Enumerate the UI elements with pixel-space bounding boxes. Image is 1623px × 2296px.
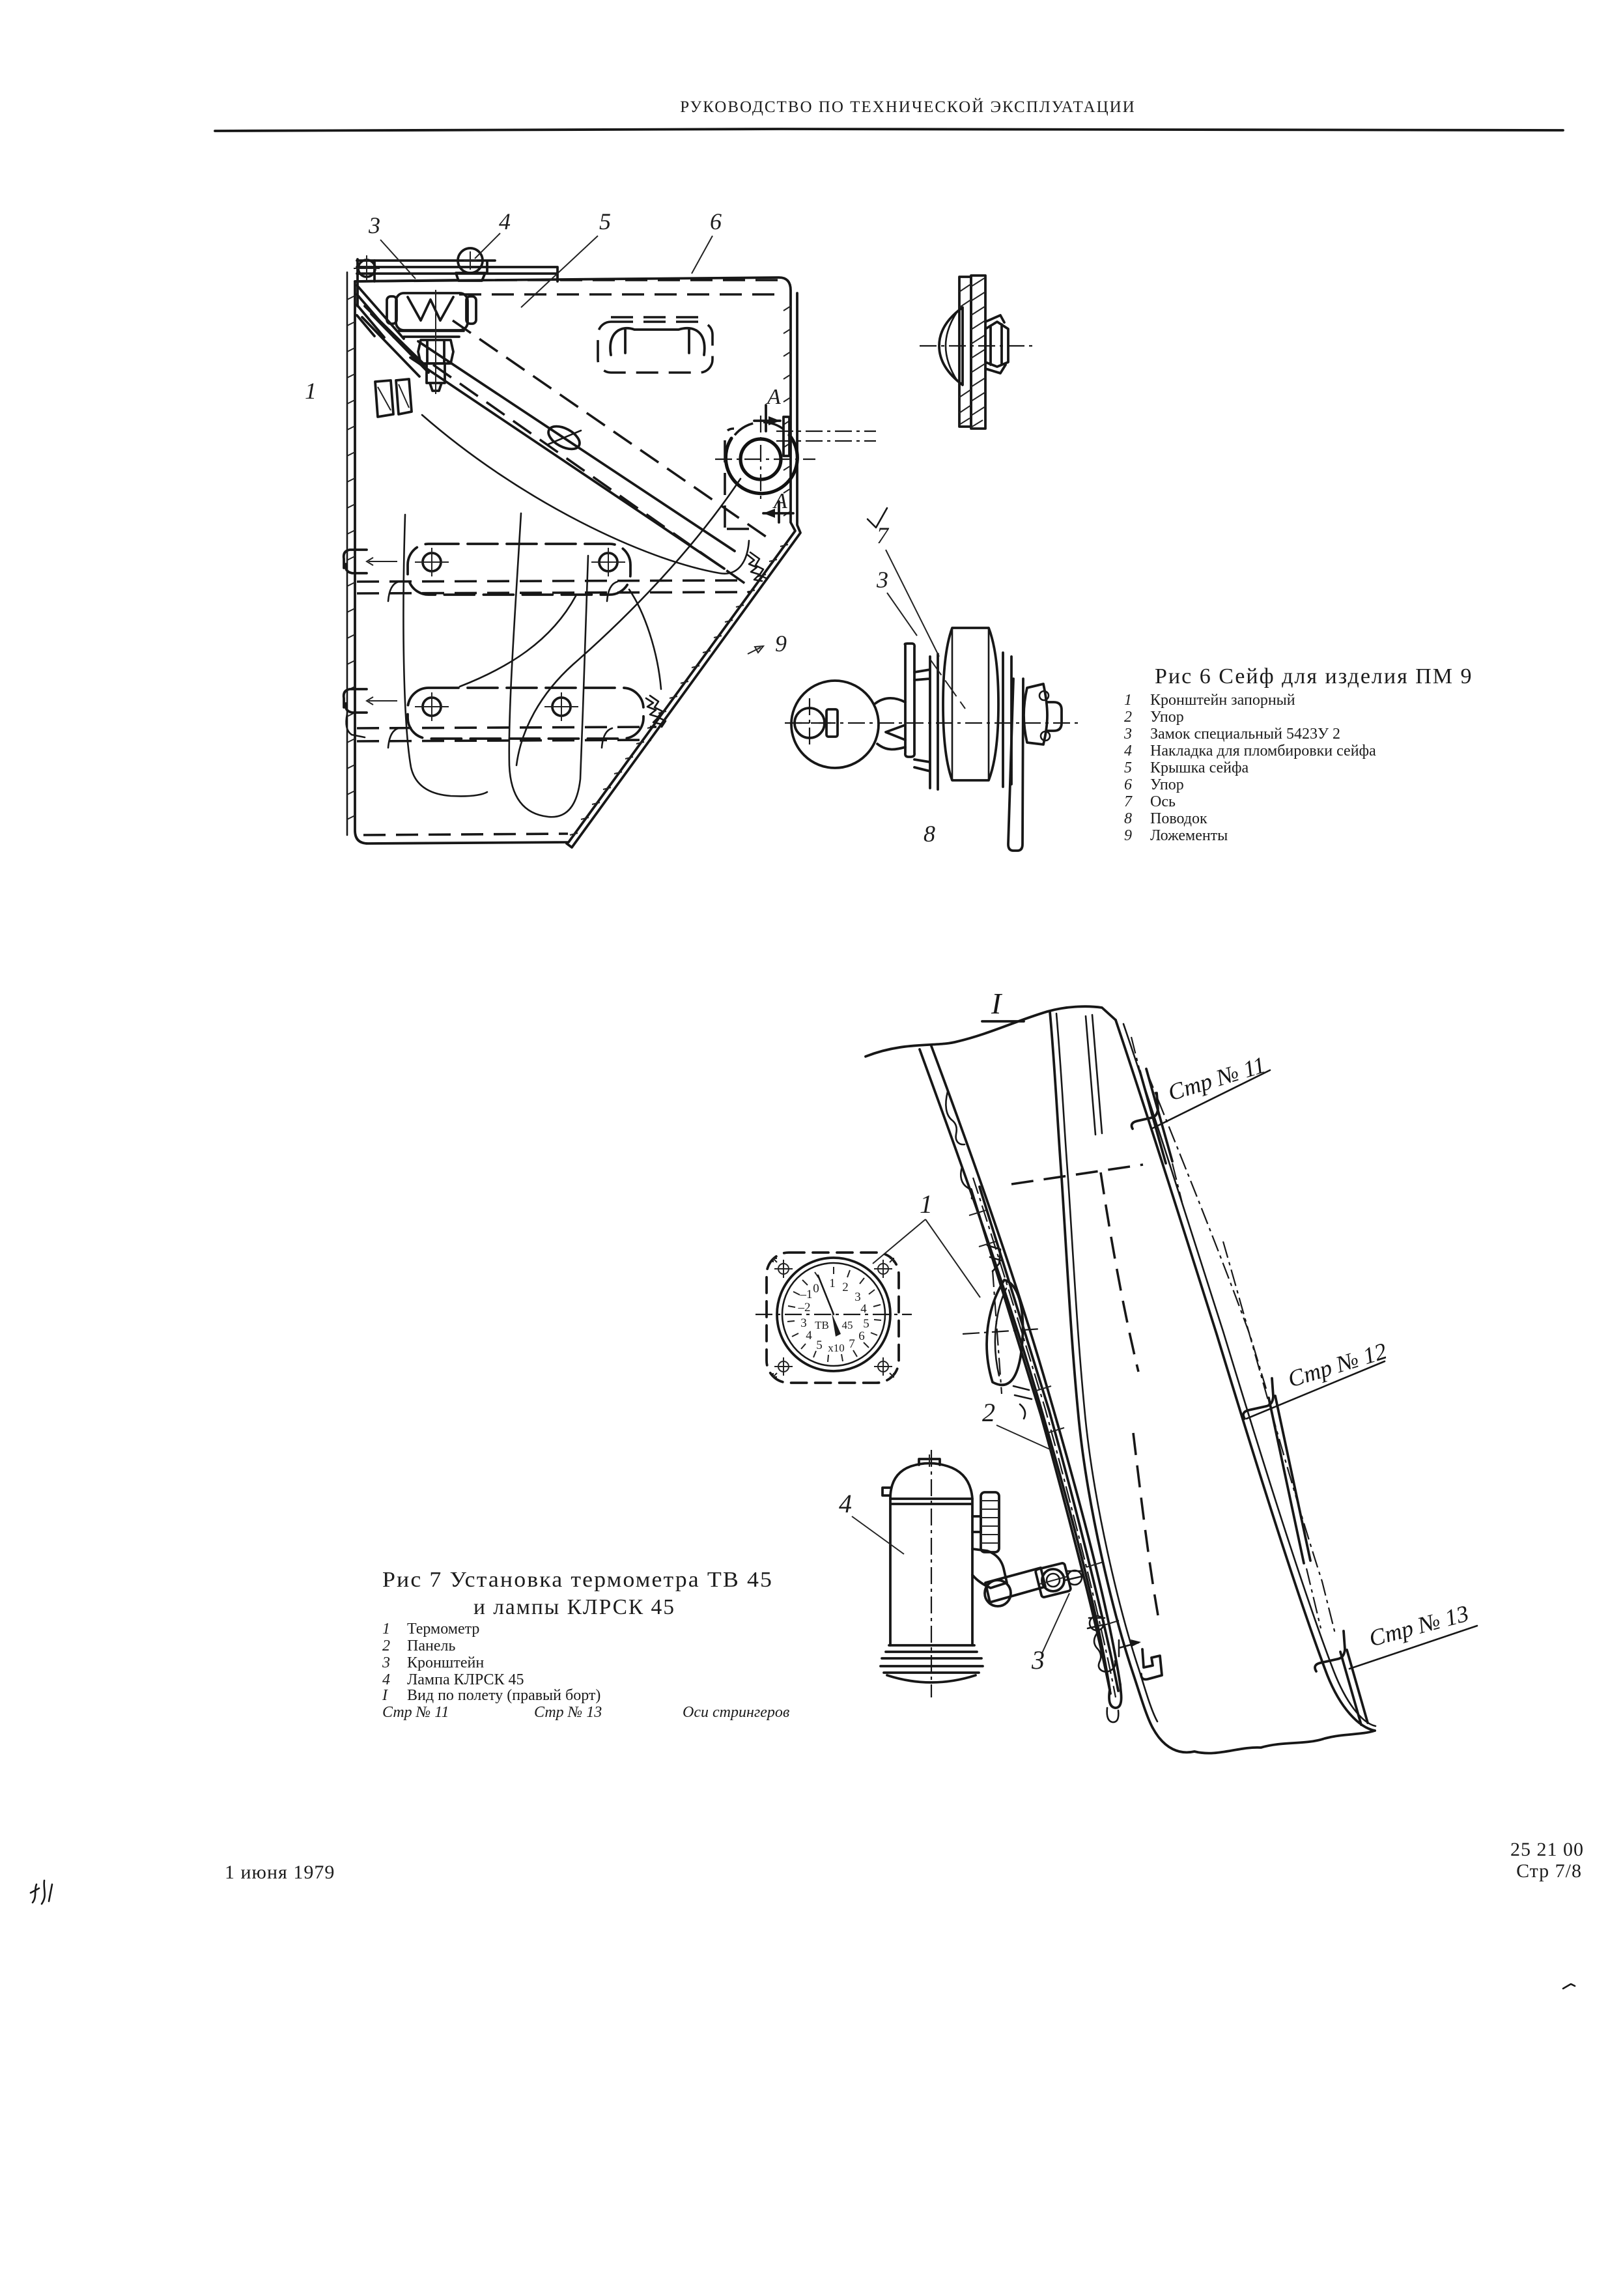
svg-text:ТВ: ТВ (815, 1319, 829, 1331)
svg-text:4: 4 (382, 1671, 390, 1688)
svg-text:Ложементы: Ложементы (1150, 827, 1228, 844)
svg-text:7: 7 (877, 522, 890, 548)
svg-text:7: 7 (1124, 793, 1133, 810)
svg-text:3: 3 (1123, 726, 1132, 743)
svg-text:Крышка сейфа: Крышка сейфа (1150, 759, 1249, 776)
svg-text:4: 4 (860, 1302, 867, 1316)
svg-text:2: 2 (842, 1281, 849, 1294)
svg-text:Замок специальный 5423У 2: Замок специальный 5423У 2 (1150, 726, 1340, 743)
svg-text:3: 3 (382, 1654, 390, 1671)
svg-text:8: 8 (924, 821, 935, 847)
svg-text:Ось: Ось (1150, 793, 1176, 810)
svg-text:Рис 7 Установка термомет: Рис 7 Установка термометра ТВ 45 (382, 1568, 773, 1592)
svg-text:и лампы КЛРСК 45: и лампы КЛРСК 45 (473, 1595, 675, 1619)
svg-text:5: 5 (816, 1339, 823, 1352)
svg-text:Накладка для пломбировки сейфа: Накладка для пломбировки сейфа (1150, 743, 1376, 759)
svg-text:2: 2 (382, 1637, 390, 1654)
svg-text:Панель: Панель (407, 1637, 455, 1654)
svg-text:Стр № 11: Стр № 11 (382, 1704, 449, 1721)
svg-text:1 июня 1979: 1 июня 1979 (225, 1862, 335, 1883)
svg-text:РУКОВОДСТВО ПО ТЕХНИЧЕСКОЙ ЭКС: РУКОВОДСТВО ПО ТЕХНИЧЕСКОЙ ЭКСПЛУАТАЦИИ (680, 98, 1135, 116)
svg-text:25 21 00: 25 21 00 (1510, 1839, 1584, 1860)
svg-text:1: 1 (305, 378, 317, 404)
svg-text:–2: –2 (798, 1301, 811, 1314)
svg-text:Кронштейн: Кронштейн (407, 1654, 484, 1671)
svg-text:6: 6 (710, 208, 722, 234)
svg-text:Кронштейн запорный: Кронштейн запорный (1150, 692, 1295, 709)
svg-text:4: 4 (839, 1489, 852, 1518)
svg-text:Упор: Упор (1150, 709, 1184, 726)
svg-text:3: 3 (368, 212, 380, 238)
svg-text:4: 4 (1124, 743, 1132, 759)
svg-text:5: 5 (863, 1317, 869, 1331)
svg-text:3: 3 (1031, 1645, 1045, 1675)
svg-text:1: 1 (382, 1621, 390, 1637)
svg-text:I: I (991, 987, 1003, 1020)
svg-text:А: А (772, 489, 787, 513)
svg-text:3: 3 (876, 567, 888, 593)
svg-text:x10: x10 (828, 1342, 845, 1354)
svg-text:1: 1 (829, 1277, 836, 1290)
svg-text:2: 2 (1124, 709, 1132, 726)
svg-text:2: 2 (982, 1398, 995, 1427)
svg-text:Оси стрингеров: Оси стрингеров (683, 1704, 789, 1721)
svg-text:9: 9 (775, 631, 787, 657)
svg-text:6: 6 (858, 1329, 865, 1343)
svg-text:1: 1 (920, 1189, 933, 1219)
svg-text:4: 4 (499, 208, 511, 234)
svg-text:Рис 6 Сейф для изделия П: Рис 6 Сейф для изделия ПМ 9 (1155, 664, 1473, 688)
svg-text:5: 5 (1124, 759, 1132, 776)
svg-text:8: 8 (1124, 810, 1132, 827)
svg-text:3: 3 (800, 1316, 807, 1330)
svg-text:Лампа КЛРСК 45: Лампа КЛРСК 45 (407, 1671, 524, 1688)
svg-text:5: 5 (599, 208, 611, 234)
svg-text:9: 9 (1124, 827, 1132, 844)
svg-text:Упор: Упор (1150, 776, 1184, 793)
svg-text:–1: –1 (800, 1288, 813, 1301)
svg-text:Термометр: Термометр (407, 1621, 479, 1637)
svg-text:Стр № 13: Стр № 13 (534, 1704, 602, 1721)
svg-text:Стр 7/8: Стр 7/8 (1516, 1860, 1582, 1882)
svg-text:4: 4 (806, 1329, 812, 1342)
svg-text:45: 45 (842, 1319, 853, 1331)
svg-text:6: 6 (1124, 776, 1132, 793)
svg-text:0: 0 (813, 1282, 819, 1296)
svg-text:I: I (382, 1687, 388, 1704)
svg-text:Вид по полету (правый борт): Вид по полету (правый борт) (407, 1687, 600, 1704)
svg-text:А: А (766, 385, 781, 409)
svg-text:7: 7 (849, 1337, 855, 1351)
svg-text:Поводок: Поводок (1150, 810, 1207, 827)
svg-text:1: 1 (1124, 692, 1132, 709)
